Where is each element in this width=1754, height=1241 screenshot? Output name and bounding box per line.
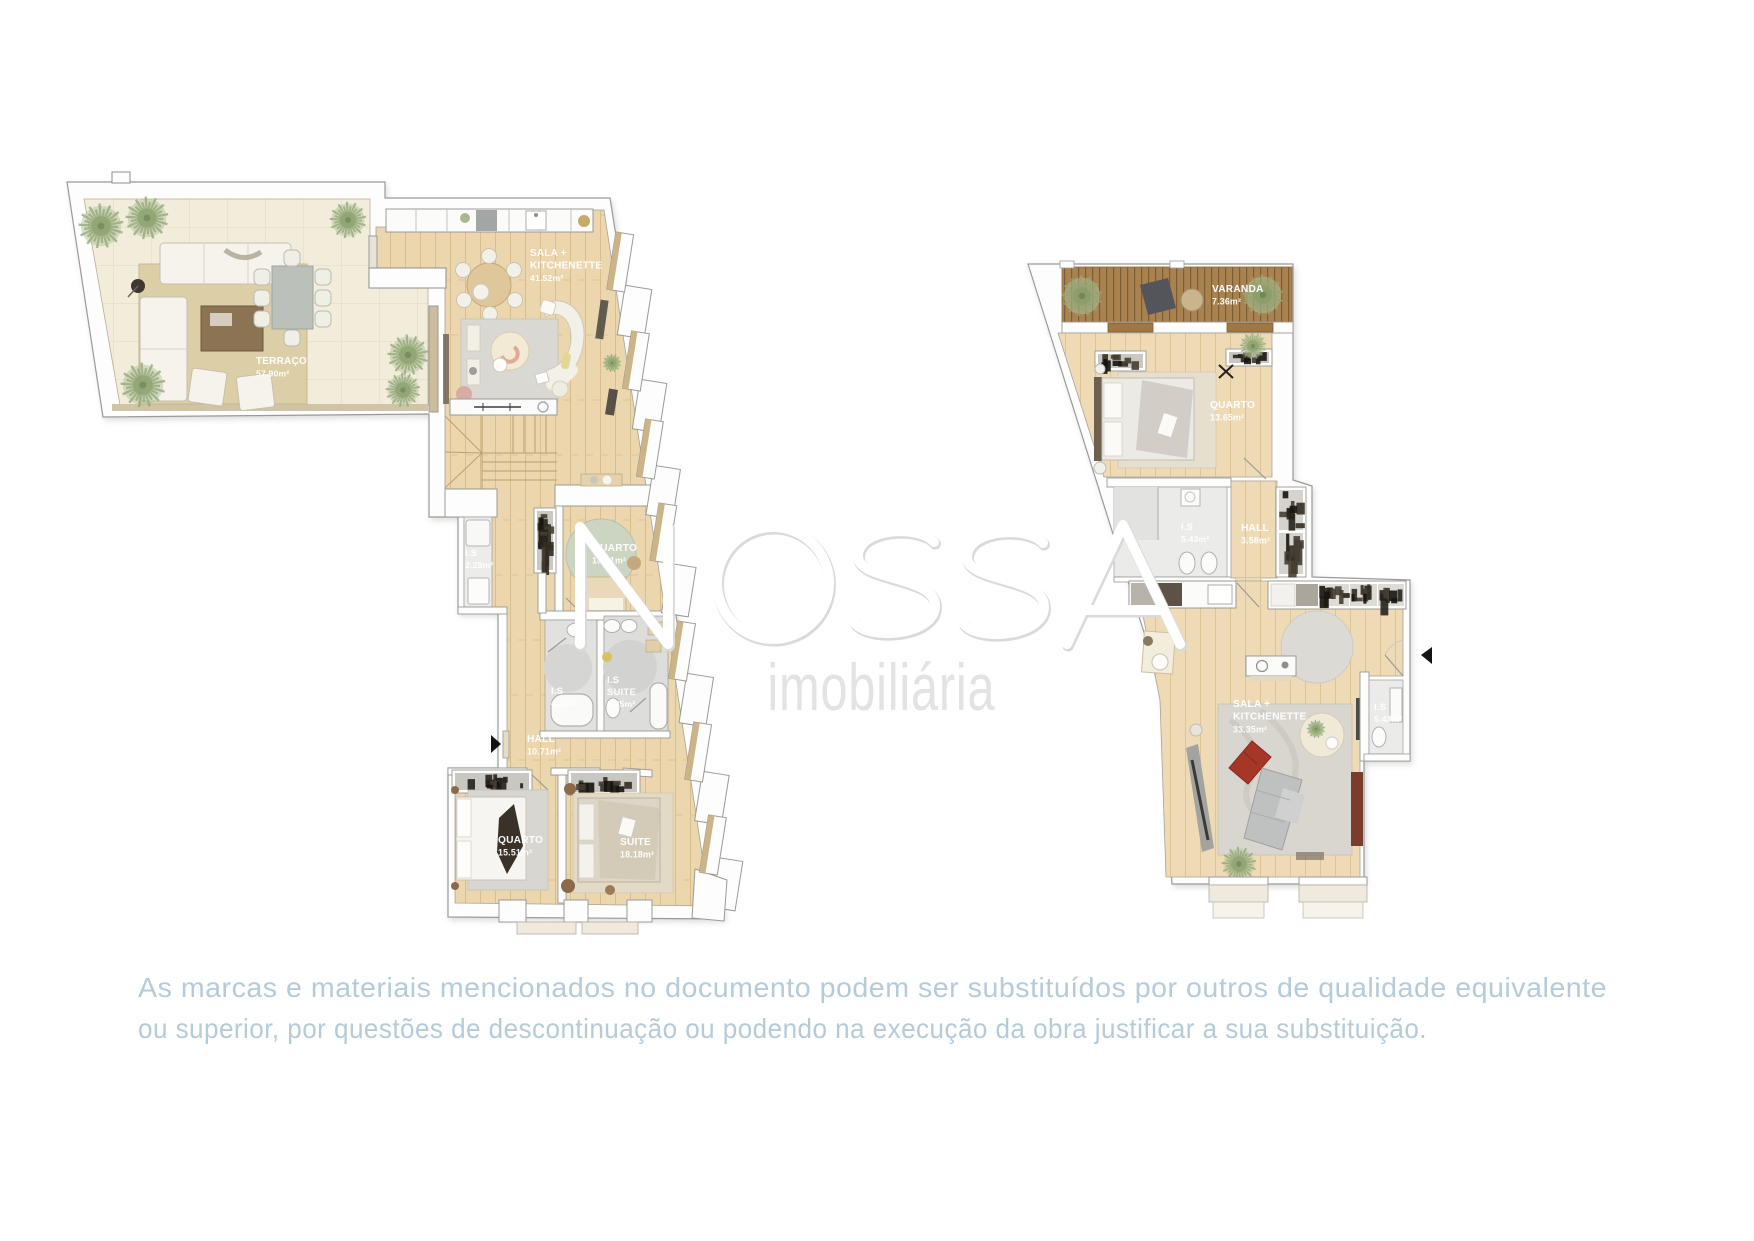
svg-text:ou superior, por questões de d: ou superior, por questões de descontinua…: [138, 1012, 1427, 1044]
svg-text:18.18m²: 18.18m²: [620, 850, 654, 860]
svg-text:VARANDA: VARANDA: [1212, 284, 1264, 295]
svg-text:HALL: HALL: [527, 734, 555, 745]
svg-text:SUITE: SUITE: [607, 687, 636, 698]
svg-text:3.58m²: 3.58m²: [1241, 536, 1270, 546]
svg-text:2.28m²: 2.28m²: [465, 560, 493, 570]
svg-text:10.71m²: 10.71m²: [527, 747, 561, 757]
svg-text:KITCHENETTE: KITCHENETTE: [530, 261, 602, 272]
svg-text:I.S: I.S: [465, 548, 477, 559]
svg-text:I.S: I.S: [607, 675, 619, 686]
svg-text:SALA +: SALA +: [530, 248, 567, 259]
svg-text:5.43m²: 5.43m²: [1181, 534, 1209, 544]
svg-text:I.S: I.S: [551, 686, 563, 697]
svg-text:7.36m²: 7.36m²: [1212, 297, 1241, 307]
svg-text:6.85m²: 6.85m²: [607, 699, 635, 709]
svg-text:13.65m²: 13.65m²: [1210, 413, 1244, 423]
svg-text:5.43m²: 5.43m²: [1374, 714, 1402, 724]
svg-text:33.35m²: 33.35m²: [1233, 724, 1267, 734]
svg-text:41.52m²: 41.52m²: [530, 273, 563, 283]
svg-text:I.S: I.S: [1181, 522, 1193, 533]
svg-text:I.S: I.S: [1374, 702, 1386, 713]
svg-text:QUARTO: QUARTO: [1210, 400, 1255, 411]
svg-text:SUITE: SUITE: [620, 837, 651, 848]
svg-text:4.51m²: 4.51m²: [551, 698, 579, 708]
svg-text:QUARTO: QUARTO: [498, 835, 543, 846]
svg-text:SALA +: SALA +: [1233, 699, 1270, 710]
svg-text:15.51m²: 15.51m²: [498, 848, 532, 858]
svg-text:TERRAÇO: TERRAÇO: [256, 356, 307, 367]
svg-text:As marcas e materiais menciona: As marcas e materiais mencionados no doc…: [138, 971, 1607, 1003]
svg-text:HALL: HALL: [1241, 523, 1269, 534]
svg-text:57.90m²: 57.90m²: [256, 369, 289, 379]
svg-text:KITCHENETTE: KITCHENETTE: [1233, 712, 1307, 723]
svg-text:imobiliária: imobiliária: [767, 651, 995, 725]
